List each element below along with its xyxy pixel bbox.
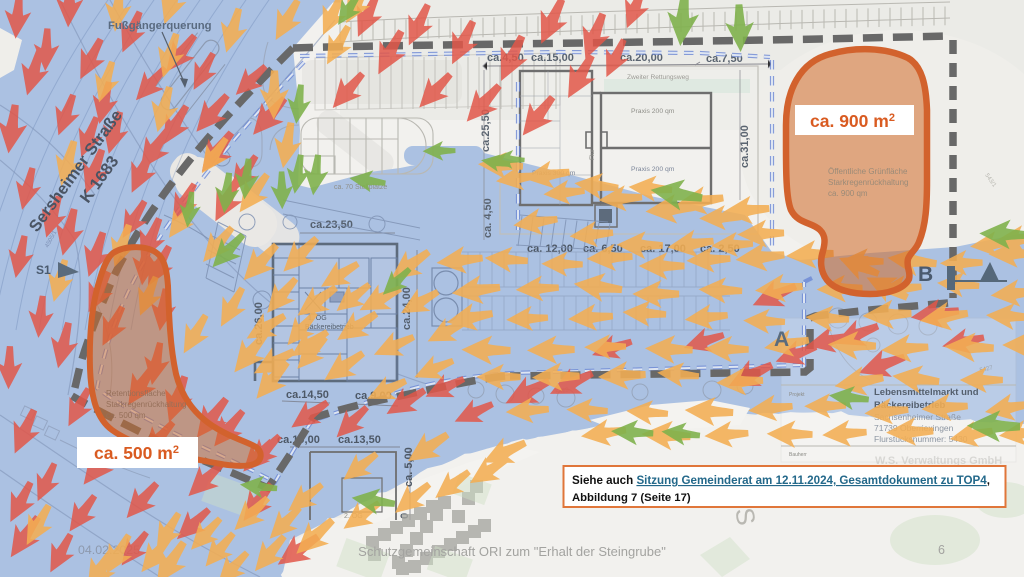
svg-text:Abbildung 7 (Seite 17): Abbildung 7 (Seite 17) <box>572 492 691 504</box>
svg-text:ca. 900 qm: ca. 900 qm <box>828 189 868 198</box>
svg-text:ca. 900 m2: ca. 900 m2 <box>810 111 895 131</box>
svg-text:B: B <box>918 263 933 286</box>
svg-text:Praxis 200 qm: Praxis 200 qm <box>631 166 675 173</box>
svg-text:ca.15,00: ca.15,00 <box>531 52 574 64</box>
svg-text:Starkregenrückhaltung: Starkregenrückhaltung <box>106 400 187 409</box>
svg-text:ca.13,50: ca.13,50 <box>338 434 381 446</box>
svg-text:Starkregenrückhaltung: Starkregenrückhaltung <box>828 178 909 187</box>
svg-text:Fußgängerquerung: Fußgängerquerung <box>108 20 212 32</box>
svg-text:Projekt: Projekt <box>789 392 805 398</box>
svg-text:Retentionsfläche: Retentionsfläche <box>106 389 166 398</box>
svg-text:Flur: Flur <box>589 148 596 160</box>
svg-text:ca.25,50: ca.25,50 <box>480 109 492 152</box>
svg-text:Siehe auch Sitzung Gemeinderat: Siehe auch Sitzung Gemeinderat am 12.11.… <box>572 474 990 487</box>
svg-text:Zweiter Rettungsweg: Zweiter Rettungsweg <box>627 74 689 81</box>
svg-text:Öffentliche Grünfläche: Öffentliche Grünfläche <box>828 167 908 176</box>
svg-text:Praxis 200 qm: Praxis 200 qm <box>631 108 675 115</box>
svg-text:ca.31,00: ca.31,00 <box>739 125 751 168</box>
svg-text:Schutzgemeinschaft ORI zum "Er: Schutzgemeinschaft ORI zum "Erhalt der S… <box>358 544 666 559</box>
svg-text:ca. 500 m2: ca. 500 m2 <box>94 443 179 463</box>
svg-text:6: 6 <box>938 543 945 557</box>
svg-text:Bauherr: Bauherr <box>789 452 807 458</box>
svg-text:S1: S1 <box>36 263 51 277</box>
svg-text:Lebensmittelmarkt und: Lebensmittelmarkt und <box>874 387 979 398</box>
svg-text:A: A <box>774 328 789 351</box>
svg-text:ca. 500 qm: ca. 500 qm <box>106 411 146 420</box>
svg-text:ca.14,50: ca.14,50 <box>286 389 329 401</box>
